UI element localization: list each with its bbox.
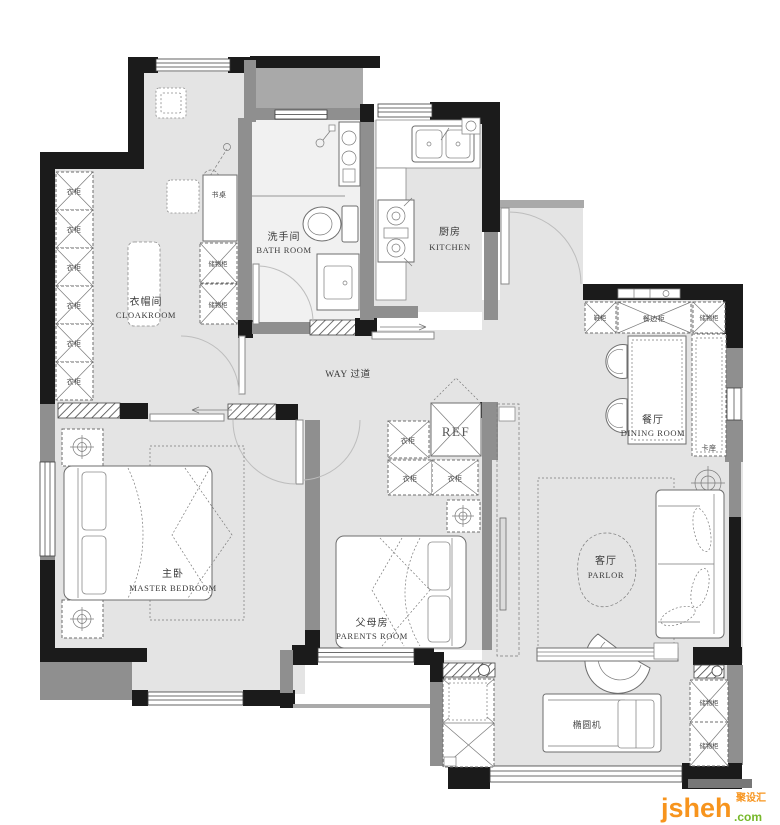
storage-cabinet: 储物柜	[690, 665, 728, 722]
watermark-brand: jsheh	[660, 793, 732, 823]
wardrobe-label: 衣柜	[448, 474, 463, 483]
stove	[378, 198, 414, 266]
desk	[203, 175, 237, 241]
storage-label: 储物柜	[209, 300, 228, 309]
window-master-west	[40, 462, 55, 556]
fridge-label: REF	[442, 424, 470, 439]
vent-grille	[618, 289, 680, 298]
sideboard-label: 餐边柜	[643, 314, 666, 323]
kitchen-title-zh: 厨房	[439, 225, 461, 238]
shoe-cabinet: 鞋柜	[585, 302, 616, 333]
storage-cabinet: 储物柜	[200, 243, 237, 283]
bath-vanity	[317, 254, 359, 310]
master-title-en: MASTER BEDROOM	[129, 583, 217, 593]
storage-cabinet: 储物柜	[690, 722, 728, 766]
booth-label: 卡座	[702, 443, 717, 452]
shoe-cabinet-label: 鞋柜	[594, 313, 607, 322]
floor-plan-page: 衣柜 衣柜 衣柜 衣柜 衣柜 衣柜 书桌 储物柜 储物柜 衣帽间 CLOAKRO…	[0, 0, 780, 825]
master-title-zh: 主卧	[162, 567, 184, 580]
wardrobe-label: 衣柜	[67, 263, 82, 272]
parents-title-zh: 父母房	[356, 616, 389, 629]
wardrobe: 衣柜	[432, 460, 478, 495]
parlor-title-zh: 客厅	[595, 554, 617, 567]
storage-label: 储物柜	[700, 698, 719, 707]
nightstand	[62, 429, 103, 466]
window-master-south	[148, 692, 243, 705]
tv	[500, 518, 506, 610]
window-niche	[156, 59, 230, 71]
parents-title-en: PARENTS ROOM	[336, 631, 408, 641]
wardrobe-label: 衣柜	[401, 436, 416, 445]
booth-seat: 卡座	[692, 334, 726, 456]
cloakroom-title-en: CLOAKROOM	[116, 310, 176, 320]
window-kitchen	[378, 104, 432, 117]
desk-chair	[167, 180, 199, 213]
kitchen-sliding-door	[372, 324, 434, 339]
wardrobe-label: 衣柜	[67, 187, 82, 196]
watermark: jsheh .com 聚设汇	[660, 791, 766, 824]
window-parents-south	[318, 648, 414, 662]
floor-plan: 衣柜 衣柜 衣柜 衣柜 衣柜 衣柜 书桌 储物柜 储物柜 衣帽间 CLOAKRO…	[0, 0, 780, 825]
bathroom-title-en: BATH ROOM	[256, 245, 311, 255]
corridor-label: WAY 过道	[325, 368, 370, 380]
wardrobe-label: 衣柜	[67, 301, 82, 310]
elliptical-label: 椭圆机	[573, 719, 602, 730]
wardrobe-column: 衣柜 衣柜 衣柜 衣柜 衣柜 衣柜	[56, 172, 93, 400]
parlor-title-en: PARLOR	[588, 570, 624, 580]
kitchen-corner-fixture	[462, 118, 480, 134]
storage-cabinet: 储物柜	[200, 284, 237, 324]
window-dining-east	[727, 388, 741, 420]
wardrobe: 衣柜	[388, 421, 429, 458]
nightstand	[62, 600, 103, 638]
dining-title-en: DINING ROOM	[621, 428, 685, 438]
desk-label: 书桌	[212, 190, 227, 199]
storage-label: 储物柜	[700, 741, 719, 750]
sideboard: 餐边柜	[618, 302, 691, 333]
cloakroom-title-zh: 衣帽间	[130, 295, 163, 308]
window-balcony-south	[490, 766, 682, 782]
nightstand	[447, 500, 480, 532]
bathroom-title-zh: 洗手间	[268, 230, 301, 243]
storage-label: 储物柜	[209, 259, 228, 268]
master-bed	[64, 466, 232, 600]
dining-title-zh: 餐厅	[642, 413, 664, 426]
watermark-domain: .com	[734, 810, 762, 824]
window-bathroom	[275, 110, 327, 119]
storage-label: 储物柜	[700, 313, 719, 322]
wardrobe-label: 衣柜	[67, 339, 82, 348]
wardrobe-label: 衣柜	[403, 474, 418, 483]
watermark-cn: 聚设汇	[735, 791, 766, 804]
bathroom-sink	[339, 122, 360, 186]
storage-cabinet: 储物柜	[693, 302, 725, 333]
elliptical-machine: 椭圆机	[543, 694, 661, 752]
sofa	[656, 490, 724, 638]
kitchen-title-en: KITCHEN	[429, 242, 471, 252]
wardrobe: 衣柜	[388, 460, 432, 495]
wardrobe-label: 衣柜	[67, 225, 82, 234]
toilet	[303, 206, 358, 242]
wardrobe-label: 衣柜	[67, 377, 82, 386]
